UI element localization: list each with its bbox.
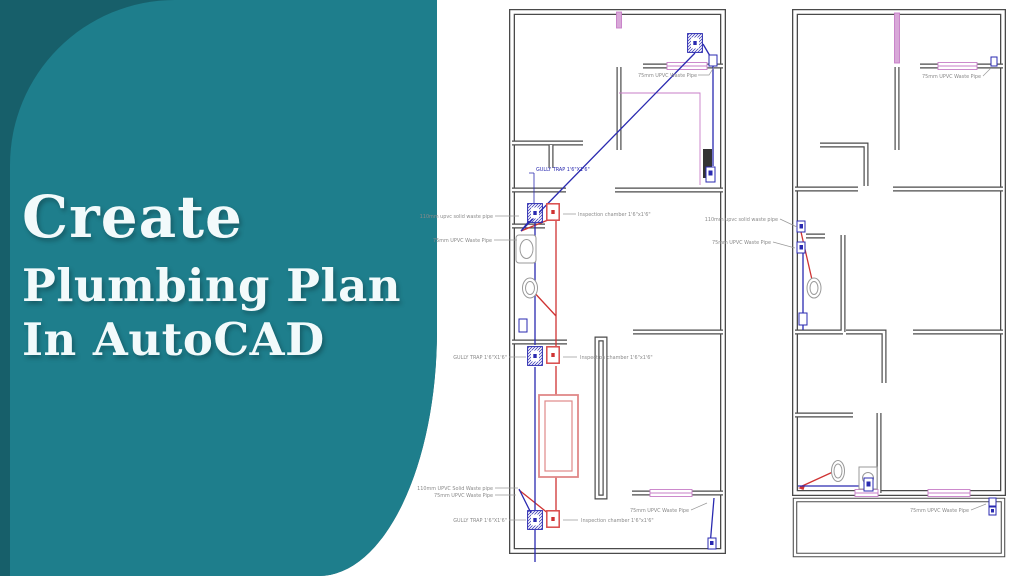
plan1-red-pipes: [519, 220, 556, 514]
inspection-chamber: [547, 204, 559, 220]
gully-trap-label: GULLY TRAP 1'6"X1'6": [453, 518, 507, 524]
gully-trap-label: GULLY TRAP 1'6"X1'6": [453, 355, 507, 361]
plan1-windows: [617, 12, 708, 497]
pipe-label: 75mm UPVC Waste Pipe: [433, 238, 492, 244]
floor-plan-2: 75mm UPVC Waste Pipe 110mm upvc solid wa…: [705, 12, 1003, 555]
inspection-chamber-label: Inspection chamber 1'6"x1'6": [578, 212, 651, 218]
pipe-label: 75mm UPVC Waste Pipe: [712, 240, 771, 246]
plan1-fixtures: [516, 235, 538, 298]
pipe-label: 110mm upvc solid waste pipe: [705, 217, 778, 223]
inspection-chamber-label: Inspection chamber 1'6"x1'6": [580, 355, 653, 361]
pipe-label: 75mm UPVC Waste Pipe: [922, 74, 981, 80]
inspection-chamber-label: Inspection chamber 1'6"x1'6": [581, 518, 654, 524]
gully-trap: [688, 34, 703, 53]
plan2-windows: [855, 13, 977, 497]
gully-trap: [528, 347, 543, 366]
septic-tank: [539, 395, 578, 477]
inspection-chamber: [547, 511, 559, 527]
pipe-label: 110mm UPVC Solid Waste pipe: [417, 486, 493, 492]
plan2-red-pipes: [800, 232, 835, 487]
gully-trap: [528, 511, 543, 530]
gully-trap-label: GULLY TRAP 1'6"X1'6": [536, 167, 590, 173]
pipe-label: 75mm UPVC Waste Pipe: [638, 73, 697, 79]
pipe-label: 75mm UPVC Waste Pipe: [910, 508, 969, 514]
floor-plan-1: GULLY TRAP 1'6"X1'6" 75mm UPVC Waste Pip…: [417, 12, 723, 562]
pipe-label: 75mm UPVC Waste Pipe: [434, 493, 493, 499]
plan2-leader-lines: [773, 68, 991, 510]
pipe-label: 110mm upvc solid waste pipe: [420, 214, 493, 220]
gully-trap: [528, 204, 543, 223]
pipe-label: 75mm UPVC Waste Pipe: [630, 508, 689, 514]
plan2-walls: [795, 12, 1003, 555]
inspection-chamber: [547, 347, 559, 363]
thumbnail: Create Plumbing Plan In AutoCAD: [0, 0, 1024, 576]
plumbing-plans-canvas: GULLY TRAP 1'6"X1'6" 75mm UPVC Waste Pip…: [0, 0, 1024, 576]
